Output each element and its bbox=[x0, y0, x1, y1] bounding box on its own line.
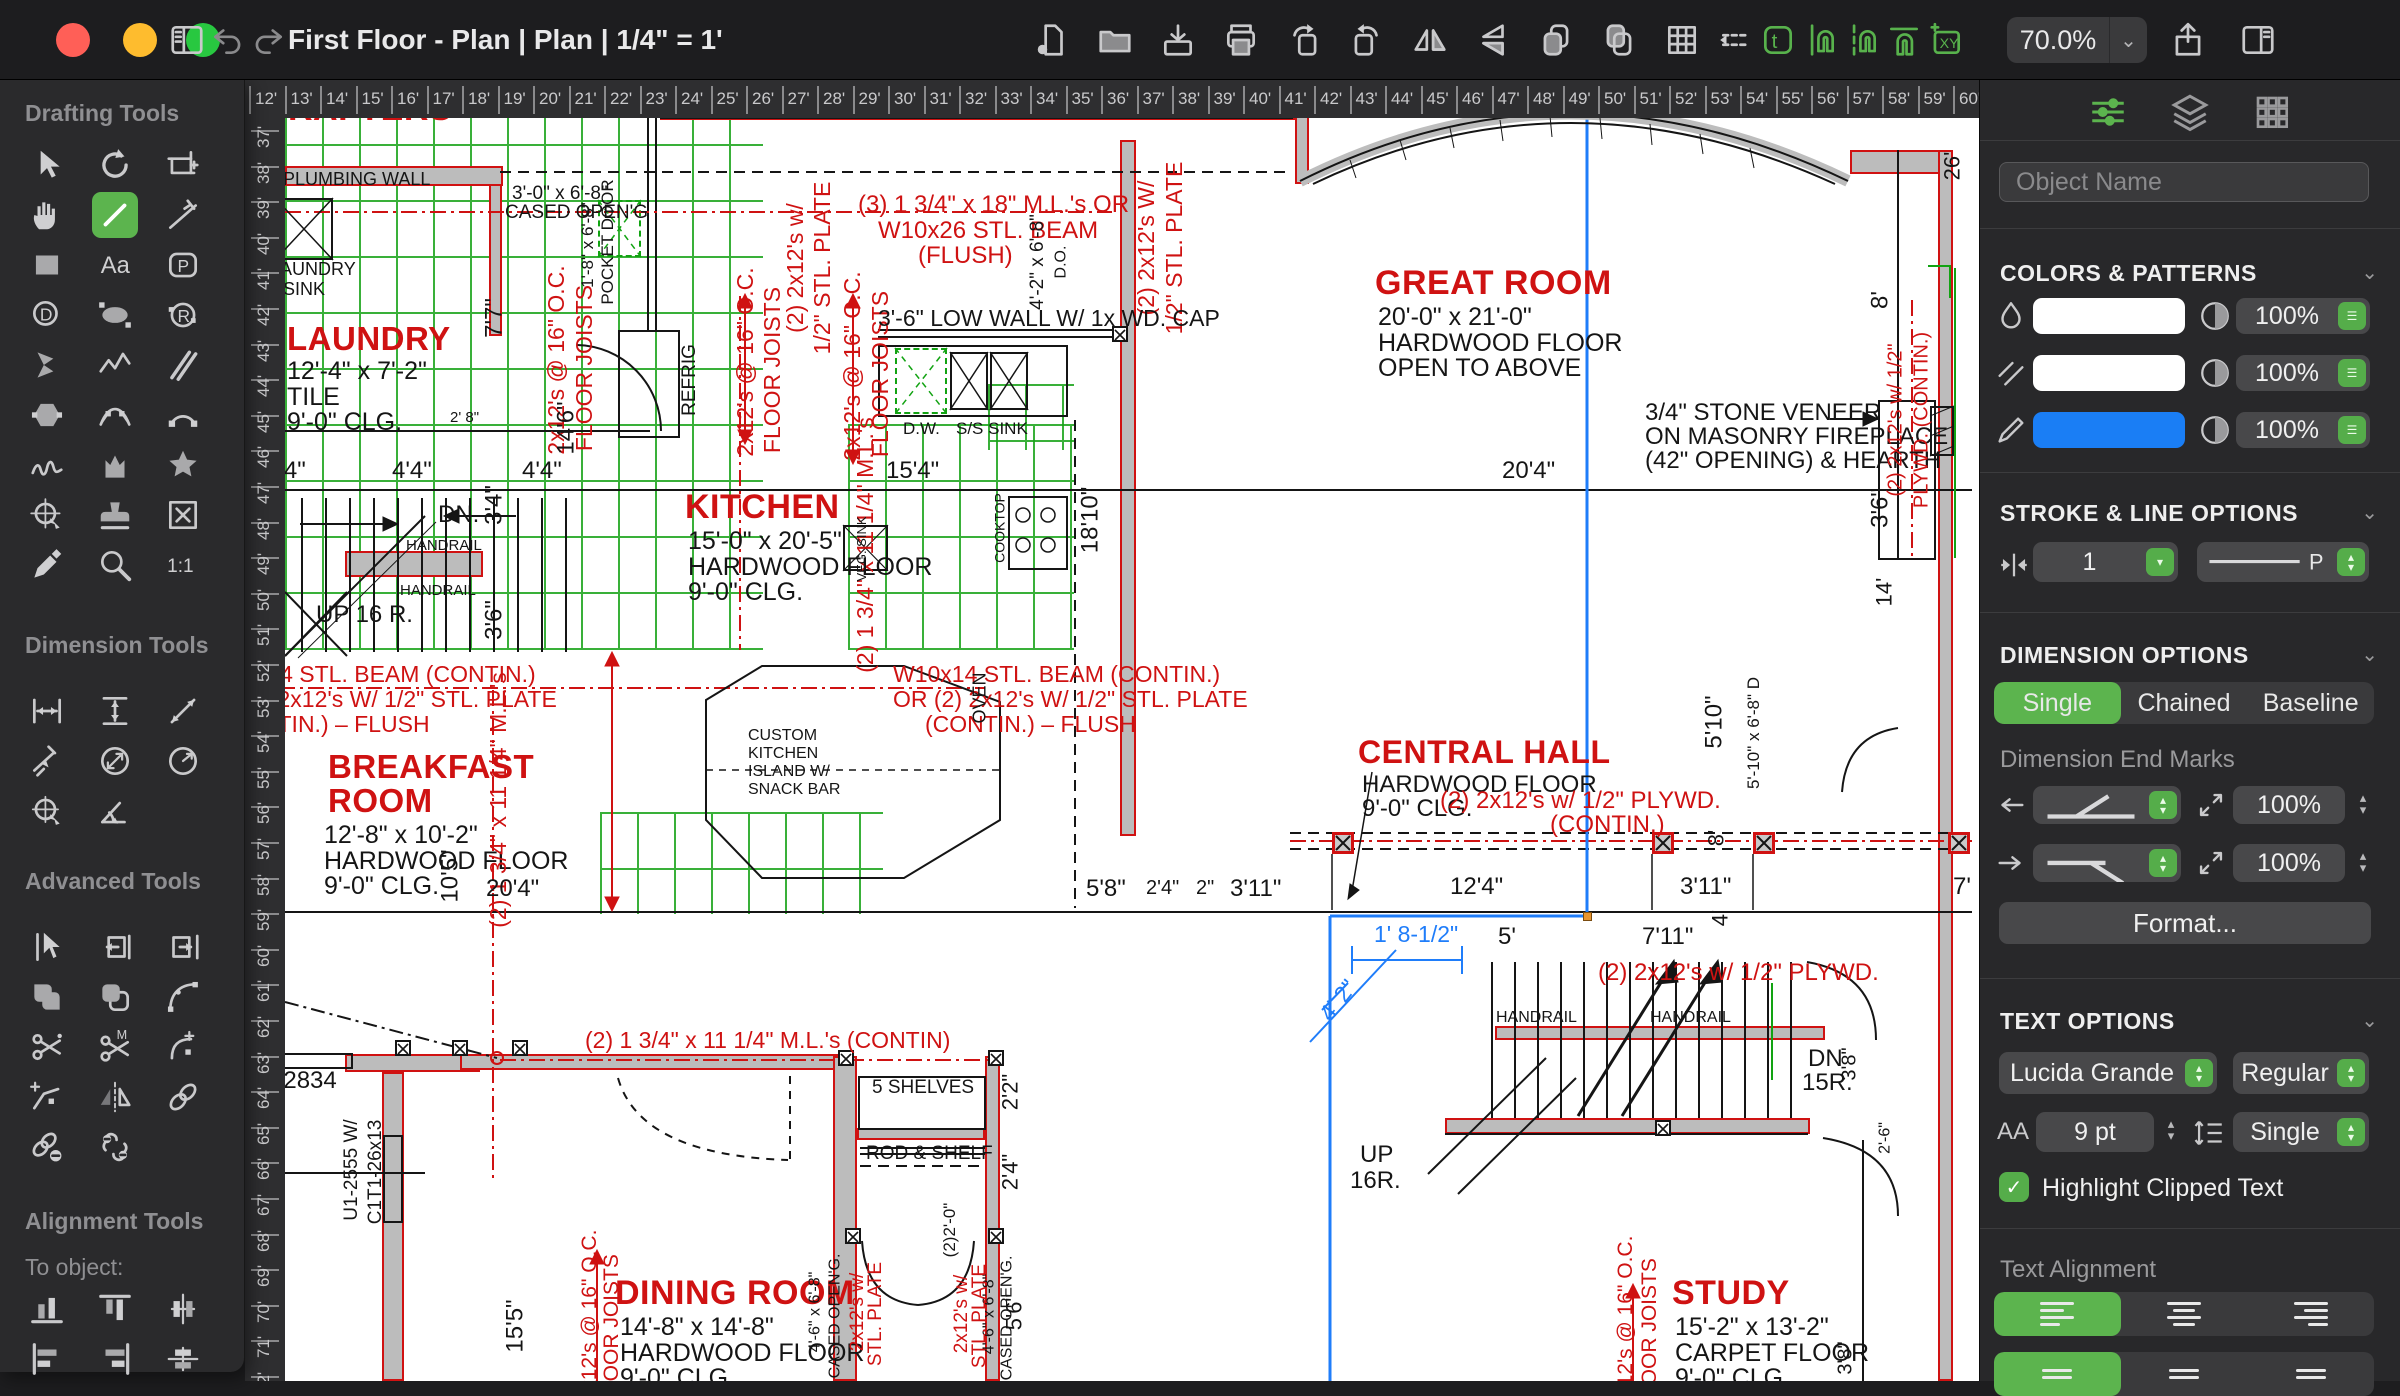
tool-split[interactable] bbox=[24, 1024, 70, 1070]
ruler-mark: 60' bbox=[254, 945, 274, 967]
ruler-mark: 65' bbox=[254, 1123, 274, 1145]
ruler-mark: 68' bbox=[254, 1229, 274, 1251]
plan-label: 4'-6" x 6'-8" bbox=[808, 1272, 825, 1353]
plan-label: 3'4" bbox=[481, 485, 506, 525]
inspector-panel: Object Name COLORS & PATTERNS ⌄ 100%☰100… bbox=[1979, 80, 2400, 1381]
plan-label: OR (2) 2x12's W/ 1/2" STL. PLATE bbox=[893, 687, 1248, 711]
ruler-mark: 30' bbox=[894, 89, 916, 109]
plan-label: (3) 1 3/4" x 18" M.L.'s OR bbox=[858, 192, 1129, 217]
plan-label: 3/4" STONE VENEER bbox=[1645, 400, 1881, 425]
chevron-down-icon[interactable]: ⌄ bbox=[2109, 17, 2147, 63]
ruler-mark: 49' bbox=[254, 553, 274, 575]
plan-label: FLOOR JOISTS bbox=[760, 287, 784, 453]
ruler-mark: 64' bbox=[254, 1087, 274, 1109]
ruler-mark: 39' bbox=[1214, 89, 1236, 109]
tool-circle-diameter[interactable]: D bbox=[24, 292, 70, 338]
drawing-canvas[interactable]: RAFTERSVAULTED CLG.6 PLUMBING WALLLAUNDR… bbox=[245, 80, 1979, 1381]
ruler-mark: 31' bbox=[930, 89, 952, 109]
stroke-line-header[interactable]: STROKE & LINE OPTIONS bbox=[2000, 500, 2298, 527]
tool-arc[interactable] bbox=[160, 392, 206, 438]
plan-label: 3'11" bbox=[1680, 874, 1731, 899]
dimension-options-header[interactable]: DIMENSION OPTIONS bbox=[2000, 642, 2249, 669]
plan-label: 2'2" bbox=[998, 1074, 1021, 1110]
ruler-mark: 49' bbox=[1569, 89, 1591, 109]
ruler-mark: 54' bbox=[254, 731, 274, 753]
line-style-select[interactable]: P ▴▾ bbox=[2197, 542, 2369, 582]
ruler-mark: 63' bbox=[254, 1051, 274, 1073]
tool-dim-vertical[interactable] bbox=[92, 688, 138, 734]
colors-patterns-header[interactable]: COLORS & PATTERNS bbox=[2000, 260, 2257, 287]
plan-label: 16R. bbox=[1350, 1168, 1401, 1193]
object-name-input[interactable]: Object Name bbox=[1999, 162, 2369, 202]
highlight-clipped-label: Highlight Clipped Text bbox=[2042, 1174, 2283, 1203]
inspector-tab[interactable] bbox=[2087, 91, 2129, 138]
plan-label: 2x12's @ 16" O.C. bbox=[733, 267, 757, 456]
plan-label: UP 16 R. bbox=[316, 602, 413, 627]
plan-label: STL. PLATE bbox=[970, 1264, 990, 1368]
plan-label: S/S SINK bbox=[956, 420, 1028, 438]
ruler-mark: 26' bbox=[752, 89, 774, 109]
end-mark-scale-field[interactable]: 100% bbox=[2233, 844, 2345, 882]
ruler-mark: 72' bbox=[254, 1372, 274, 1381]
wall-node bbox=[845, 1228, 861, 1244]
ruler-mark: 59' bbox=[254, 909, 274, 931]
plan-label: 4'4" bbox=[522, 458, 562, 483]
plan-label: 12'-8" x 10'-2" bbox=[324, 822, 478, 848]
tool-select[interactable] bbox=[24, 142, 70, 188]
svg-text:M: M bbox=[117, 1028, 128, 1042]
sidebar-toggle-icon[interactable] bbox=[167, 20, 207, 60]
snap-to-objects-icon[interactable] bbox=[1884, 20, 1924, 60]
minimize-window-button[interactable] bbox=[123, 23, 157, 57]
tool-zoom-tool[interactable] bbox=[92, 542, 138, 588]
plan-label: 15'4" bbox=[886, 458, 939, 483]
zoom-level-value: 70.0% bbox=[2007, 25, 2109, 56]
plan-label: 2' 8" bbox=[450, 410, 479, 426]
end-mark-style-select[interactable]: ▴▾ bbox=[2033, 786, 2181, 824]
new-document-icon[interactable] bbox=[1032, 20, 1072, 60]
font-size-field[interactable]: 9 pt bbox=[2036, 1112, 2154, 1152]
plan-label: POCKET DOOR bbox=[599, 179, 617, 304]
tool-chamfer[interactable] bbox=[24, 1074, 70, 1120]
end-mark-scale-field[interactable]: 100% bbox=[2233, 786, 2345, 824]
plan-label: HARDWOOD FLOOR bbox=[1378, 330, 1622, 356]
tool-link[interactable] bbox=[160, 1074, 206, 1120]
tool-multi-split[interactable]: M bbox=[92, 1024, 138, 1070]
end-mark-scale-value: 100% bbox=[2233, 849, 2345, 878]
ruler-mark: 14' bbox=[326, 89, 348, 109]
ruler-mark: 52' bbox=[254, 660, 274, 682]
font-size-value: 9 pt bbox=[2036, 1118, 2154, 1147]
open-folder-icon[interactable] bbox=[1095, 20, 1135, 60]
tool-mirror[interactable] bbox=[92, 1074, 138, 1120]
tool-stamp[interactable] bbox=[92, 492, 138, 538]
undo-icon[interactable] bbox=[208, 20, 248, 60]
ruler-mark: 55' bbox=[254, 767, 274, 789]
stepper-icon[interactable]: ▴▾ bbox=[2337, 548, 2365, 576]
guides-icon[interactable] bbox=[1716, 20, 1756, 60]
tool-align-bottom[interactable] bbox=[24, 1286, 70, 1332]
ruler-mark: 28' bbox=[823, 89, 845, 109]
tool-eyedropper[interactable] bbox=[24, 542, 70, 588]
ruler-mark: 61' bbox=[254, 980, 274, 1002]
svg-text:P: P bbox=[2309, 550, 2324, 575]
ruler-mark: 66' bbox=[254, 1158, 274, 1180]
font-weight-select[interactable]: Regular ▴▾ bbox=[2233, 1052, 2369, 1094]
ruler-mark: 38' bbox=[254, 161, 274, 183]
opacity-value: 100% bbox=[2236, 302, 2338, 331]
plan-label: PLYWD. (CONTIN.) bbox=[1912, 332, 1933, 508]
dimension-mode-single[interactable]: Single bbox=[1994, 682, 2121, 724]
stepper-icon[interactable]: ▴▾ bbox=[2185, 1059, 2213, 1087]
end-mark-style-select[interactable]: ▴▾ bbox=[2033, 844, 2181, 882]
tool-align-left[interactable] bbox=[24, 1336, 70, 1382]
plan-label: CASED OPEN'G bbox=[505, 203, 648, 223]
stepper-icon[interactable]: ▴▾ bbox=[2337, 1059, 2365, 1087]
plan-label: 26' bbox=[1940, 152, 1963, 181]
tool-bezier-curve[interactable] bbox=[92, 392, 138, 438]
plan-label: (CONTIN.) bbox=[1550, 812, 1665, 837]
plan-label: 4' bbox=[1708, 910, 1731, 926]
dimension-mode-segmented: Single Chained Baseline bbox=[1994, 682, 2374, 724]
tool-dim-aligned[interactable] bbox=[160, 688, 206, 734]
chevron-down-icon[interactable]: ⌄ bbox=[2361, 642, 2378, 667]
plan-label: 6 PLUMBING WALL bbox=[268, 170, 430, 189]
plan-label: CASED OPEN'G. bbox=[828, 1254, 845, 1379]
tool-polyline[interactable] bbox=[92, 342, 138, 388]
panel-toggle-icon[interactable] bbox=[2238, 20, 2278, 60]
ruler-mark: 59' bbox=[1924, 89, 1946, 109]
tool-pan[interactable] bbox=[24, 192, 70, 238]
tool-align-top[interactable] bbox=[92, 1286, 138, 1332]
ruler-mark: 27' bbox=[788, 89, 810, 109]
tool-unlink-all[interactable] bbox=[92, 1124, 138, 1170]
tool-dim-angled[interactable] bbox=[24, 738, 70, 784]
plan-label: (2) 2x12's w/ 1/2" bbox=[1886, 343, 1907, 496]
tool-edit-points[interactable] bbox=[24, 924, 70, 970]
ruler-mark: 12' bbox=[255, 89, 277, 109]
tool-dim-horizontal[interactable] bbox=[24, 688, 70, 734]
duplicate-icon[interactable] bbox=[1536, 20, 1576, 60]
opacity-value: 100% bbox=[2236, 359, 2338, 388]
font-family-select[interactable]: Lucida Grande ▴▾ bbox=[1999, 1052, 2217, 1094]
plan-label: STUDY bbox=[1672, 1276, 1790, 1312]
section-subtitle: To object: bbox=[25, 1254, 123, 1281]
contrast-icon[interactable] bbox=[2198, 413, 2232, 447]
highlight-clipped-checkbox[interactable]: ✓ bbox=[1999, 1172, 2029, 1202]
stroke-pencil-icon bbox=[1994, 413, 2028, 447]
plan-label: 8' bbox=[1704, 830, 1727, 846]
start-mark-arrow-icon bbox=[1994, 788, 2028, 822]
flip-horizontal-icon[interactable] bbox=[1410, 20, 1450, 60]
chevron-down-icon[interactable]: ▾ bbox=[2146, 548, 2174, 576]
ruler-mark: 50' bbox=[254, 589, 274, 611]
ruler-mark: 18' bbox=[468, 89, 490, 109]
plan-label: 15'5" bbox=[502, 1299, 527, 1352]
plan-label: 4'4" bbox=[392, 458, 432, 483]
ruler-mark: 53' bbox=[1711, 89, 1733, 109]
svg-text:D: D bbox=[40, 305, 53, 325]
stepper-icon[interactable]: ▴▾ bbox=[2352, 850, 2374, 874]
ruler-mark: 42' bbox=[1320, 89, 1342, 109]
plan-label: 3'8" bbox=[1840, 1047, 1861, 1080]
plan-label: 14'-8" x 14'-8" bbox=[620, 1314, 774, 1340]
plan-label: 3'11" bbox=[1230, 876, 1281, 901]
rotate-left-icon[interactable] bbox=[1284, 20, 1324, 60]
expand-icon[interactable] bbox=[2194, 846, 2228, 880]
ruler-mark: 48' bbox=[1533, 89, 1555, 109]
ruler-mark: 36' bbox=[1107, 89, 1129, 109]
layers-tab[interactable] bbox=[2169, 91, 2211, 138]
align-center-button[interactable] bbox=[2121, 1292, 2248, 1336]
table-grid-icon[interactable] bbox=[1662, 20, 1702, 60]
plan-label: 9'-0" CLG. bbox=[688, 579, 803, 605]
plan-label: 14'6" bbox=[553, 401, 578, 454]
plan-label: CARPET FLOOR bbox=[1675, 1340, 1869, 1366]
ruler-mark: 51' bbox=[1640, 89, 1662, 109]
tool-distribute-horizontal[interactable] bbox=[160, 1286, 206, 1332]
contrast-icon[interactable] bbox=[2198, 299, 2232, 333]
plan-label: (2)2'-0" bbox=[941, 1203, 959, 1258]
plan-label: 2x12's @ 16" O.C. bbox=[579, 1230, 601, 1381]
plan-label: 15'-0" x 20'-5" bbox=[688, 528, 842, 554]
ruler-mark: 46' bbox=[254, 446, 274, 468]
tool-symbol[interactable] bbox=[160, 492, 206, 538]
chevron-down-icon[interactable]: ⌄ bbox=[2361, 1008, 2378, 1033]
plan-label: 2'-6" bbox=[1878, 1122, 1895, 1154]
expand-icon[interactable] bbox=[2194, 788, 2228, 822]
plan-label: 12'4" bbox=[1450, 874, 1503, 899]
tool-freehand[interactable] bbox=[24, 442, 70, 488]
ruler-mark: 70' bbox=[254, 1301, 274, 1323]
svg-text:1:1: 1:1 bbox=[167, 556, 193, 577]
tools-sidebar: Drafting ToolsAaPDR1:1Dimension ToolsAdv… bbox=[0, 80, 245, 1372]
plan-label: (2) 2x12's w/ bbox=[783, 203, 807, 333]
tool-ellipse[interactable] bbox=[92, 292, 138, 338]
font-size-icon: AA bbox=[1997, 1118, 2029, 1146]
opacity-slider-icon: ☰ bbox=[2338, 359, 2366, 387]
plan-label: DN bbox=[1808, 1046, 1843, 1071]
plan-label: CENTRAL HALL bbox=[1358, 736, 1611, 770]
text-options-header[interactable]: TEXT OPTIONS bbox=[2000, 1008, 2175, 1035]
tool-arc-segment[interactable] bbox=[24, 342, 70, 388]
font-family-value: Lucida Grande bbox=[1999, 1059, 2185, 1088]
plan-label: KITCHEN bbox=[685, 490, 840, 526]
chevron-down-icon[interactable]: ⌄ bbox=[2361, 260, 2378, 285]
fill-droplet-icon bbox=[1994, 299, 2028, 333]
ruler-mark: 58' bbox=[254, 873, 274, 895]
tool-trim[interactable] bbox=[160, 142, 206, 188]
stepper-icon[interactable]: ▴▾ bbox=[2337, 1118, 2365, 1146]
tool-subtract[interactable] bbox=[92, 974, 138, 1020]
text-frame-icon[interactable]: t bbox=[1758, 20, 1798, 60]
zoom-level-control[interactable]: 70.0% ⌄ bbox=[2007, 17, 2147, 63]
snap-to-grid-icon[interactable] bbox=[1842, 20, 1882, 60]
opacity-value: 100% bbox=[2236, 416, 2338, 445]
plan-label: FLOOR JOISTS bbox=[1639, 1258, 1661, 1381]
text-alignment-label: Text Alignment bbox=[2000, 1256, 2156, 1284]
post bbox=[1948, 832, 1970, 854]
selection-handle[interactable] bbox=[1583, 912, 1592, 921]
redo-icon[interactable] bbox=[248, 20, 288, 60]
plan-label: UP bbox=[1360, 1142, 1393, 1167]
snap-to-coordinates-icon[interactable]: XY bbox=[1926, 20, 1966, 60]
align-left-button[interactable] bbox=[1994, 1292, 2121, 1336]
ruler-mark: 58' bbox=[1888, 89, 1910, 109]
stroke-width-select[interactable]: 1 ▾ bbox=[2033, 542, 2178, 582]
plan-label: HARDWOOD FLOOR bbox=[688, 554, 932, 580]
opacity-control[interactable]: 100%☰ bbox=[2236, 298, 2370, 334]
tool-dim-ordinate[interactable] bbox=[24, 788, 70, 834]
end-mark-scale-value: 100% bbox=[2233, 791, 2345, 820]
dimension-mode-baseline[interactable]: Baseline bbox=[2247, 682, 2374, 724]
plan-label: 1/2" STL. PLATE bbox=[810, 182, 834, 355]
tool-unlink[interactable] bbox=[24, 1124, 70, 1170]
tool-parametric-object[interactable]: P bbox=[160, 242, 206, 288]
plan-label: REFRIG bbox=[680, 344, 700, 416]
valign-top-button[interactable] bbox=[1994, 1352, 2121, 1396]
plan-label: 7'7" bbox=[481, 298, 506, 338]
ruler-mark: 35' bbox=[1072, 89, 1094, 109]
ruler-mark: 51' bbox=[254, 624, 274, 646]
tool-actual-size[interactable]: 1:1 bbox=[160, 542, 206, 588]
ruler-mark: 22' bbox=[610, 89, 632, 109]
copy-style-icon[interactable] bbox=[1599, 20, 1639, 60]
plan-label: 9'-0" CLG. bbox=[1675, 1365, 1790, 1381]
tool-rectangle[interactable] bbox=[24, 242, 70, 288]
tool-irregular-polygon[interactable] bbox=[92, 442, 138, 488]
plan-label: 3'-0" x 6'-8" bbox=[512, 184, 608, 204]
tool-dim-diameter[interactable] bbox=[92, 738, 138, 784]
format-button[interactable]: Format... bbox=[1999, 902, 2371, 944]
print-icon[interactable] bbox=[1221, 20, 1261, 60]
plan-label: FLOOR JOISTS bbox=[601, 1254, 623, 1381]
stroke-width-icon bbox=[1997, 548, 2031, 582]
svg-text:t: t bbox=[1772, 30, 1778, 53]
valign-bottom-button[interactable] bbox=[2247, 1352, 2374, 1396]
ruler-mark: 62' bbox=[254, 1016, 274, 1038]
plan-label: 7' bbox=[1953, 874, 1971, 899]
ruler-mark: 43' bbox=[254, 339, 274, 361]
plan-label: 12'-4" x 7'-2" bbox=[287, 358, 427, 384]
plan-label: 2'4" bbox=[998, 1154, 1021, 1190]
post bbox=[1332, 832, 1354, 854]
plan-label: 5'10" bbox=[1701, 695, 1726, 748]
tool-extend-right[interactable] bbox=[160, 924, 206, 970]
line-spacing-icon bbox=[2192, 1116, 2226, 1150]
plan-label: (2) 1 3/4" x 11 1/4" M.L.'s (CONTIN) bbox=[585, 1028, 950, 1052]
tool-text[interactable]: Aa bbox=[92, 242, 138, 288]
svg-text:R: R bbox=[177, 306, 190, 326]
ruler-mark: 60' bbox=[1959, 89, 1979, 109]
plan-label: 5'-10" x 6'-8" D bbox=[1745, 677, 1763, 789]
chevron-down-icon[interactable]: ⌄ bbox=[2361, 500, 2378, 525]
tool-fillet[interactable] bbox=[160, 1024, 206, 1070]
plan-label: HANDRAIL bbox=[400, 583, 476, 599]
color-swatch[interactable] bbox=[2033, 298, 2185, 334]
tool-union[interactable] bbox=[24, 974, 70, 1020]
tool-align-right[interactable] bbox=[92, 1336, 138, 1382]
tool-fillet-points[interactable] bbox=[160, 974, 206, 1020]
wall-node bbox=[1655, 1120, 1671, 1136]
ruler-mark: 57' bbox=[1853, 89, 1875, 109]
stroke-width-value: 1 bbox=[2033, 548, 2146, 577]
tool-extend-left[interactable] bbox=[92, 924, 138, 970]
tool-double-line[interactable] bbox=[160, 342, 206, 388]
section-title: Drafting Tools bbox=[25, 100, 179, 127]
horizontal-ruler: 12'13'14'15'16'17'18'19'20'21'22'23'24'2… bbox=[245, 80, 1979, 118]
contrast-icon[interactable] bbox=[2198, 356, 2232, 390]
library-tab[interactable] bbox=[2251, 91, 2293, 138]
align-right-button[interactable] bbox=[2247, 1292, 2374, 1336]
ruler-mark: 38' bbox=[1178, 89, 1200, 109]
tool-polygon[interactable] bbox=[24, 392, 70, 438]
plan-label: 5'8" bbox=[1086, 876, 1126, 901]
stepper-icon[interactable]: ▴▾ bbox=[2160, 1118, 2182, 1142]
tool-circle-radius[interactable]: R bbox=[160, 292, 206, 338]
tool-dim-angle[interactable] bbox=[92, 788, 138, 834]
plan-label: 1' 8-1/2" bbox=[1374, 922, 1458, 946]
ruler-mark: 42' bbox=[254, 304, 274, 326]
end-mark-arrow-icon bbox=[1994, 846, 2028, 880]
snap-to-guides-icon[interactable] bbox=[1800, 20, 1840, 60]
plan-label: W10x26 STL. BEAM bbox=[878, 218, 1098, 243]
valign-middle-button[interactable] bbox=[2121, 1352, 2248, 1396]
color-swatch[interactable] bbox=[2033, 355, 2185, 391]
tool-construction-line[interactable] bbox=[160, 192, 206, 238]
share-icon[interactable] bbox=[2168, 20, 2208, 60]
stepper-icon: ▴▾ bbox=[2149, 849, 2177, 877]
tool-dim-radius[interactable] bbox=[160, 738, 206, 784]
rotate-right-icon[interactable] bbox=[1347, 20, 1387, 60]
plan-label: 18'10" bbox=[1077, 487, 1102, 554]
text-align-segmented bbox=[1994, 1292, 2374, 1336]
vertical-align-segmented bbox=[1994, 1352, 2374, 1396]
ruler-mark: 40' bbox=[1249, 89, 1271, 109]
stepper-icon[interactable]: ▴▾ bbox=[2352, 792, 2374, 816]
ruler-mark: 45' bbox=[254, 411, 274, 433]
tool-distribute-vertical[interactable] bbox=[160, 1336, 206, 1382]
close-window-button[interactable] bbox=[56, 23, 90, 57]
color-swatch[interactable] bbox=[2033, 412, 2185, 448]
ruler-mark: 50' bbox=[1604, 89, 1626, 109]
ruler-mark: 56' bbox=[254, 802, 274, 824]
plan-label: ISLAND W/ bbox=[748, 764, 830, 781]
svg-text:Aa: Aa bbox=[101, 252, 131, 279]
plan-label: SINK bbox=[283, 280, 325, 299]
ruler-mark: 17' bbox=[433, 89, 455, 109]
vertical-ruler: 37'38'39'40'41'42'43'44'45'46'47'48'49'5… bbox=[245, 118, 285, 1381]
plan-label: 7'11" bbox=[1642, 924, 1693, 949]
font-weight-value: Regular bbox=[2233, 1059, 2337, 1088]
save-icon[interactable] bbox=[1158, 20, 1198, 60]
flip-vertical-icon[interactable] bbox=[1473, 20, 1513, 60]
opacity-control[interactable]: 100%☰ bbox=[2236, 412, 2370, 448]
line-spacing-select[interactable]: Single ▴▾ bbox=[2233, 1112, 2369, 1152]
tool-star[interactable] bbox=[160, 442, 206, 488]
opacity-control[interactable]: 100%☰ bbox=[2236, 355, 2370, 391]
plan-label: SNACK BAR bbox=[748, 782, 840, 799]
plan-label: (FLUSH) bbox=[918, 243, 1013, 268]
tool-reference-point[interactable] bbox=[24, 492, 70, 538]
tool-rotate[interactable] bbox=[92, 142, 138, 188]
dimension-mode-chained[interactable]: Chained bbox=[2121, 682, 2248, 724]
svg-text:P: P bbox=[177, 256, 189, 276]
ruler-mark: 34' bbox=[1036, 89, 1058, 109]
plan-label: 1'-8" x 6'-8" bbox=[579, 202, 597, 288]
tool-line[interactable] bbox=[92, 192, 138, 238]
plan-label: ROD & SHELF bbox=[866, 1144, 993, 1164]
